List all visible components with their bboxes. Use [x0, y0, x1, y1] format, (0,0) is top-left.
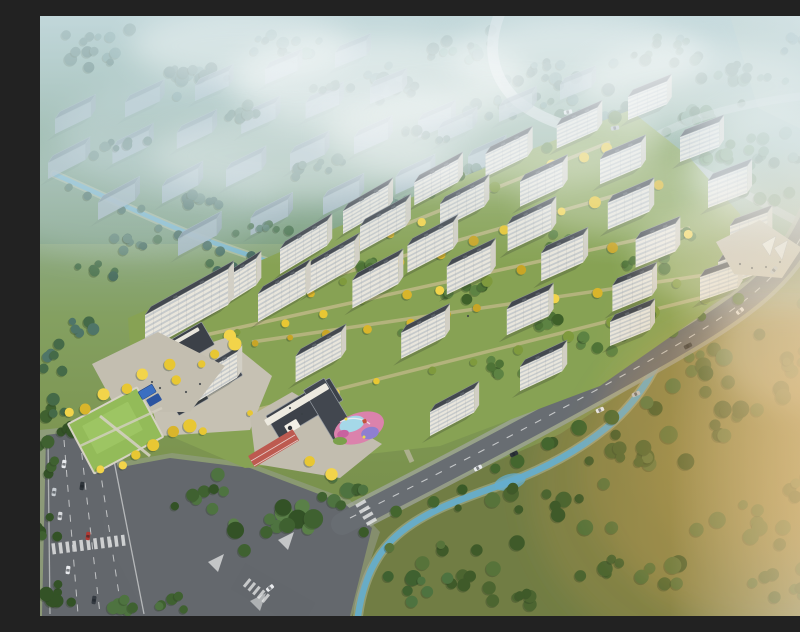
- tree-icon: [435, 286, 444, 295]
- tree-icon: [183, 419, 196, 432]
- person-dot: [467, 315, 469, 317]
- tree-icon: [210, 350, 219, 359]
- tree-icon: [422, 586, 433, 597]
- tree-icon: [437, 540, 446, 549]
- tree-icon: [455, 504, 462, 511]
- tree-icon: [508, 483, 519, 494]
- car-windshield: [80, 485, 84, 488]
- tree-icon: [577, 520, 593, 536]
- tree-icon: [339, 278, 347, 286]
- tree-icon: [131, 450, 140, 459]
- tree-icon: [69, 318, 76, 325]
- circle-shape: [363, 436, 366, 439]
- tree-icon: [52, 532, 62, 542]
- tree-icon: [128, 602, 138, 612]
- tree-icon: [238, 544, 251, 557]
- tree-icon: [275, 499, 292, 516]
- tree-icon: [542, 489, 552, 499]
- person-dot: [151, 381, 153, 383]
- tree-icon: [373, 378, 380, 385]
- tree-icon: [71, 324, 80, 333]
- tree-icon: [41, 435, 54, 448]
- tree-icon: [90, 266, 100, 276]
- tree-icon: [485, 492, 500, 507]
- tree-icon: [122, 383, 133, 394]
- tree-icon: [563, 331, 574, 342]
- tree-icon: [319, 310, 327, 318]
- tree-icon: [54, 580, 63, 589]
- tree-icon: [108, 271, 118, 281]
- tree-icon: [552, 314, 563, 325]
- tree-icon: [57, 366, 67, 376]
- tree-icon: [147, 439, 159, 451]
- tree-icon: [87, 323, 99, 335]
- circle-shape: [345, 418, 348, 421]
- car-windshield: [62, 463, 66, 466]
- tree-icon: [494, 369, 504, 379]
- tree-icon: [473, 304, 481, 312]
- tree-icon: [155, 602, 164, 611]
- tree-icon: [280, 518, 295, 533]
- tree-icon: [336, 500, 346, 510]
- car-windshield: [52, 491, 56, 494]
- tree-icon: [470, 359, 477, 366]
- tree-icon: [260, 526, 272, 538]
- tree-icon: [457, 484, 467, 494]
- tree-icon: [358, 485, 368, 495]
- person-dot: [199, 383, 201, 385]
- car-windshield: [86, 535, 90, 538]
- tree-icon: [471, 544, 483, 556]
- tree-icon: [541, 437, 554, 450]
- tree-icon: [575, 570, 586, 581]
- tree-icon: [46, 513, 54, 521]
- circle-shape: [288, 426, 292, 430]
- tree-icon: [186, 489, 199, 502]
- tree-icon: [515, 505, 524, 514]
- tree-icon: [428, 496, 439, 507]
- tree-icon: [514, 345, 524, 355]
- car-windshield: [92, 599, 96, 602]
- tree-icon: [119, 461, 127, 469]
- tree-icon: [403, 586, 413, 596]
- tree-icon: [487, 362, 496, 371]
- tree-icon: [281, 319, 289, 327]
- ellipse-shape: [333, 437, 347, 445]
- tree-icon: [47, 393, 60, 406]
- tree-icon: [172, 375, 181, 384]
- car-windshield: [58, 515, 62, 518]
- tree-icon: [402, 290, 412, 300]
- tree-icon: [495, 360, 504, 369]
- tree-icon: [264, 513, 275, 524]
- tree-icon: [304, 456, 315, 467]
- tree-icon: [179, 605, 187, 613]
- tree-icon: [510, 535, 525, 550]
- tree-icon: [50, 351, 59, 360]
- tree-icon: [359, 527, 369, 537]
- tree-icon: [98, 388, 110, 400]
- tree-icon: [406, 596, 418, 608]
- tree-icon: [80, 404, 91, 415]
- tree-icon: [575, 494, 584, 503]
- aerial-render-figure: Bird's-eye architectural rendering of a …: [40, 16, 800, 616]
- tree-icon: [207, 503, 219, 515]
- tree-icon: [551, 508, 565, 522]
- tree-icon: [516, 265, 526, 275]
- tree-icon: [457, 579, 470, 592]
- person-dot: [159, 387, 161, 389]
- tree-icon: [198, 360, 205, 367]
- tree-icon: [483, 581, 496, 594]
- tree-icon: [287, 335, 293, 341]
- person-dot: [301, 413, 303, 415]
- tree-icon: [429, 367, 437, 375]
- tree-icon: [96, 465, 104, 473]
- tree-icon: [199, 427, 207, 435]
- tree-icon: [578, 334, 585, 341]
- tree-icon: [442, 573, 453, 584]
- tree-icon: [486, 561, 501, 576]
- tree-icon: [227, 522, 244, 539]
- aerial-site-render: [40, 16, 800, 616]
- tree-icon: [209, 484, 219, 494]
- tree-icon: [168, 426, 179, 437]
- tree-icon: [107, 601, 120, 614]
- tree-icon: [252, 340, 259, 347]
- person-dot: [289, 407, 291, 409]
- tree-icon: [363, 325, 372, 334]
- tree-icon: [416, 556, 430, 570]
- tree-icon: [593, 288, 603, 298]
- tree-icon: [417, 577, 425, 585]
- tree-icon: [317, 492, 327, 502]
- tree-icon: [515, 591, 524, 600]
- tree-icon: [211, 468, 224, 481]
- tree-icon: [219, 486, 229, 496]
- tree-icon: [50, 456, 59, 465]
- tree-icon: [487, 594, 500, 607]
- tree-icon: [571, 420, 587, 436]
- tree-icon: [174, 592, 183, 601]
- tree-icon: [304, 509, 323, 528]
- ellipse-shape: [150, 114, 450, 198]
- tree-icon: [53, 339, 64, 350]
- tree-icon: [491, 463, 501, 473]
- tree-icon: [65, 408, 74, 417]
- tree-icon: [137, 369, 148, 380]
- person-dot: [185, 391, 187, 393]
- tree-icon: [171, 502, 179, 510]
- tree-icon: [383, 571, 394, 582]
- tree-icon: [390, 506, 402, 518]
- car-windshield: [66, 569, 70, 572]
- tree-icon: [228, 337, 241, 350]
- tree-icon: [325, 468, 337, 480]
- tree-icon: [385, 543, 395, 553]
- tree-icon: [67, 597, 76, 606]
- tree-icon: [49, 409, 58, 418]
- tree-icon: [164, 359, 175, 370]
